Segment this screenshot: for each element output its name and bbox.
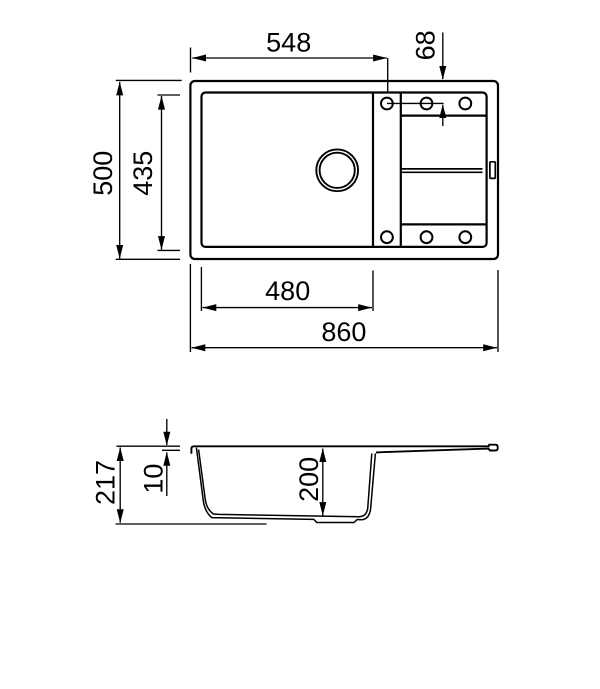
svg-text:548: 548 [266,28,311,58]
svg-text:860: 860 [321,317,366,347]
svg-text:200: 200 [294,457,324,502]
svg-text:10: 10 [138,464,168,494]
svg-text:480: 480 [265,276,310,306]
svg-text:68: 68 [410,30,440,60]
svg-text:500: 500 [88,151,118,196]
svg-text:435: 435 [128,151,158,196]
svg-text:217: 217 [91,460,121,505]
